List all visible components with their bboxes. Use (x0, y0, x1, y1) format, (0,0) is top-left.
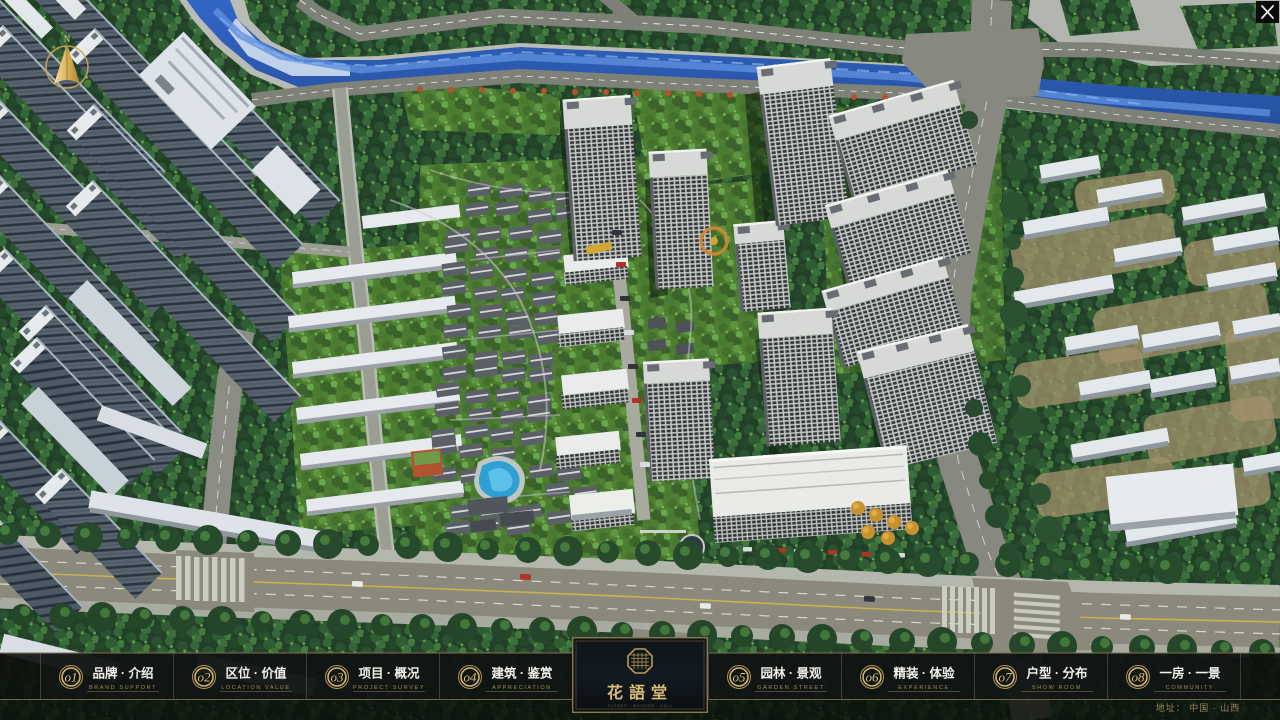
svg-text:PROJECT SURVEY: PROJECT SURVEY (353, 685, 425, 691)
svg-text:o2: o2 (198, 670, 212, 685)
svg-text:N: N (64, 34, 71, 44)
svg-text:COMMUNITY: COMMUNITY (1166, 685, 1214, 691)
svg-text:建筑 · 鉴赏: 建筑 · 鉴赏 (491, 666, 553, 681)
svg-text:户型 · 分布: 户型 · 分布 (1026, 666, 1088, 681)
svg-text:一房 · 一景: 一房 · 一景 (1159, 666, 1221, 681)
svg-text:园林 · 景观: 园林 · 景观 (760, 666, 822, 681)
svg-text:o8: o8 (1132, 670, 1146, 685)
svg-text:FLOWER · WHISPER · HALL: FLOWER · WHISPER · HALL (608, 704, 673, 708)
svg-text:o7: o7 (999, 670, 1013, 685)
svg-text:花語堂: 花語堂 (607, 683, 673, 702)
svg-text:o6: o6 (866, 670, 880, 685)
svg-text:o3: o3 (331, 670, 345, 685)
svg-text:品牌 · 介绍: 品牌 · 介绍 (92, 666, 153, 681)
svg-text:APPRECIATION: APPRECIATION (492, 685, 552, 691)
svg-text:o4: o4 (464, 670, 478, 685)
svg-text:o5: o5 (733, 670, 747, 685)
svg-text:BRAND SUPPORT: BRAND SUPPORT (89, 685, 157, 691)
svg-text:SHOW ROOM: SHOW ROOM (1032, 685, 1082, 691)
svg-text:精装 · 体验: 精装 · 体验 (893, 666, 955, 681)
svg-text:o1: o1 (65, 670, 78, 685)
svg-text:项目 · 概况: 项目 · 概况 (358, 666, 420, 681)
svg-text:区位 · 价值: 区位 · 价值 (225, 666, 287, 681)
svg-text:EXPERIENCE: EXPERIENCE (898, 685, 949, 691)
svg-text:GARDEN STREET: GARDEN STREET (757, 685, 825, 691)
svg-text:地址： 中国 · 山西: 地址： 中国 · 山西 (1156, 702, 1241, 713)
svg-text:LOCATION VALUE: LOCATION VALUE (221, 685, 290, 691)
